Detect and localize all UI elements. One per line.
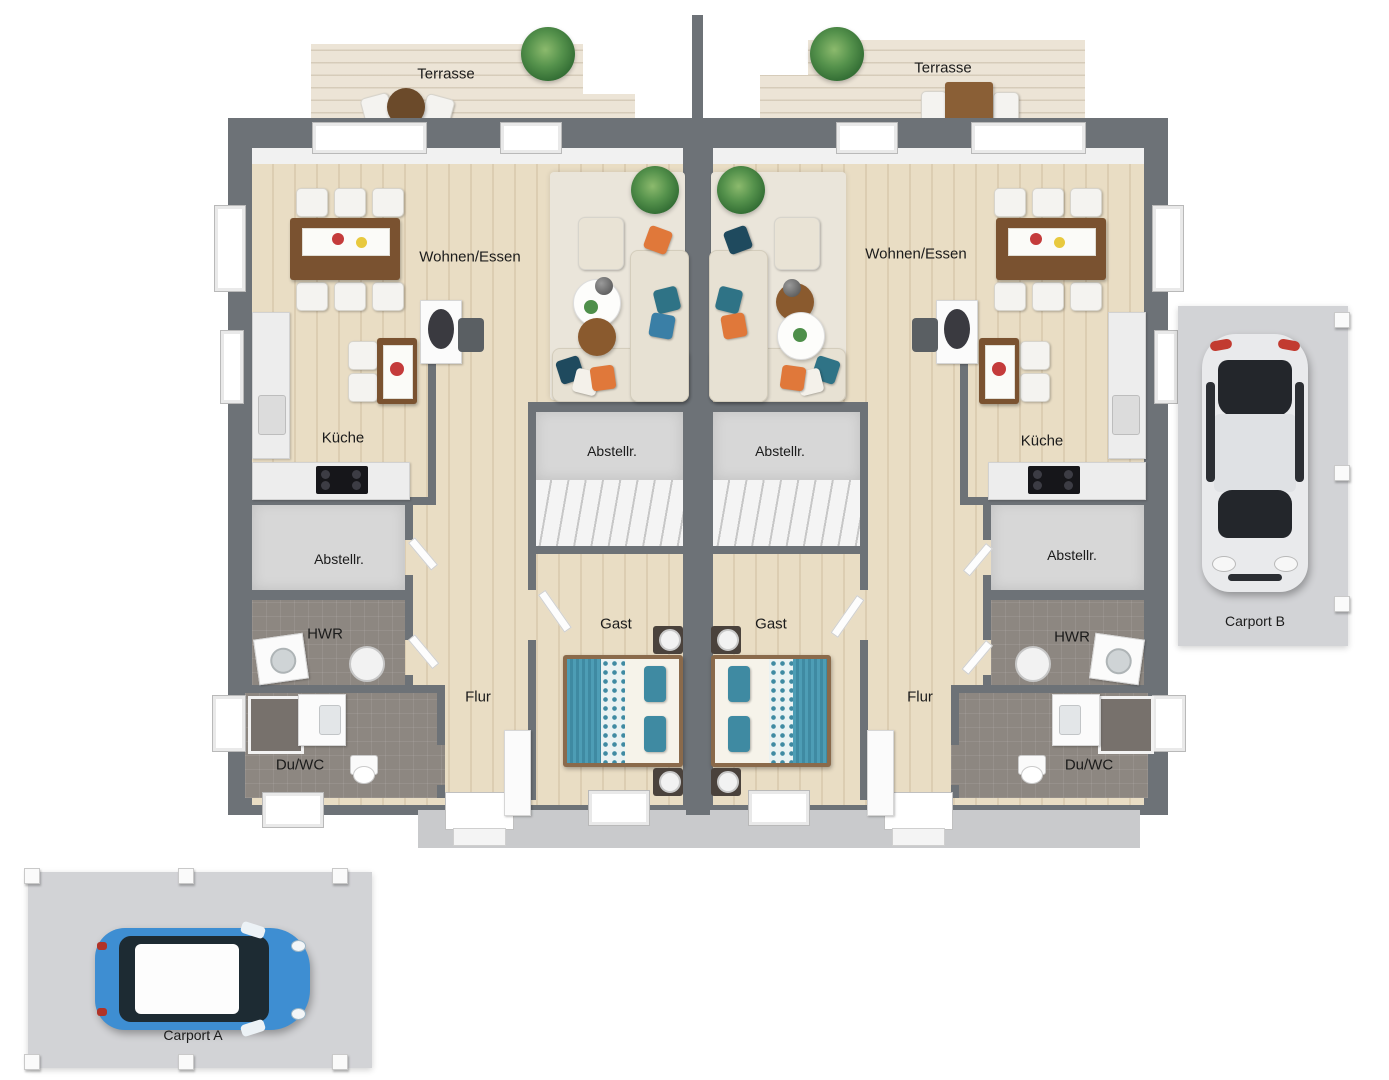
window xyxy=(1152,205,1184,292)
bedside-lamp xyxy=(717,771,739,793)
bed-left-blanket xyxy=(567,659,601,763)
kitchen-chair xyxy=(1020,373,1050,402)
wall xyxy=(405,575,413,640)
bed-left-runner xyxy=(601,659,625,763)
stairs-right xyxy=(713,480,861,546)
wardrobe-right xyxy=(867,730,894,816)
carport-post xyxy=(332,1054,348,1070)
carport-post xyxy=(1334,596,1350,612)
vanity-right xyxy=(1052,694,1100,746)
laundry-basket-right xyxy=(1015,646,1051,682)
label-carport-b: Carport B xyxy=(1225,613,1285,629)
wall xyxy=(528,402,536,590)
window xyxy=(212,695,246,752)
cooktop-right xyxy=(1028,466,1080,494)
wall xyxy=(951,693,959,745)
room-label-bath-right: Du/WC xyxy=(1065,757,1113,774)
terrace-left-plant xyxy=(521,27,575,81)
room-label-hall-right: Flur xyxy=(907,689,933,706)
storage-side-left-floor xyxy=(252,502,405,590)
wardrobe-left xyxy=(504,730,531,816)
label-carport-a: Carport A xyxy=(163,1027,222,1043)
toilet-left-bowl xyxy=(353,766,375,784)
room-label-terrace-right: Terrasse xyxy=(914,60,972,77)
dining-chair xyxy=(334,188,366,217)
tall-unit-left xyxy=(420,300,462,364)
flowers xyxy=(1030,233,1042,245)
room-label-guest-right: Gast xyxy=(755,616,787,633)
window xyxy=(588,790,650,826)
kitchen-chair xyxy=(1020,341,1050,370)
kitchen-table-left xyxy=(377,338,417,404)
storage-side-right-floor xyxy=(991,502,1144,590)
car-white xyxy=(1202,334,1308,592)
side-table-left xyxy=(578,318,616,356)
decor-sphere xyxy=(783,279,801,297)
kitchen-table-right xyxy=(979,338,1019,404)
floor-plan: Terrasse Terrasse Wohnen/Essen Wohnen/Es… xyxy=(0,0,1389,1080)
bedside-lamp xyxy=(717,629,739,651)
kitchen-counter-left xyxy=(252,312,290,459)
dining-chair xyxy=(334,282,366,311)
living-right-plant xyxy=(717,166,765,214)
shower-right xyxy=(1098,696,1154,754)
carport-post xyxy=(24,868,40,884)
washer-right xyxy=(1089,633,1145,686)
table-runner xyxy=(302,228,390,256)
vanity-left xyxy=(298,694,346,746)
bed-right-runner xyxy=(769,659,793,763)
room-label-terrace-left: Terrasse xyxy=(417,66,475,83)
washer-left xyxy=(253,633,309,686)
dining-chair xyxy=(1070,282,1102,311)
party-wall-chimney xyxy=(692,15,703,125)
bed-left-pillow xyxy=(644,666,666,702)
party-wall xyxy=(686,118,710,815)
table-plant xyxy=(584,300,598,314)
armchair-right xyxy=(774,217,820,270)
kitchen-chair xyxy=(348,373,378,402)
room-label-living-right: Wohnen/Essen xyxy=(865,246,966,263)
wall xyxy=(437,785,445,798)
bedside-lamp xyxy=(659,771,681,793)
carport-post xyxy=(1334,312,1350,328)
window xyxy=(748,790,810,826)
wall xyxy=(951,685,1148,693)
wall xyxy=(437,693,445,745)
room-label-utility-right: HWR xyxy=(1054,629,1090,646)
room-label-guest-left: Gast xyxy=(600,616,632,633)
room-label-storage-side-left: Abstellr. xyxy=(314,551,364,567)
wall xyxy=(713,402,861,412)
wall xyxy=(860,402,868,590)
table-runner xyxy=(1008,228,1096,256)
window xyxy=(500,122,562,154)
kitchen-stool-left xyxy=(458,318,484,352)
sink xyxy=(258,395,286,435)
table-plant xyxy=(793,328,807,342)
pillow-orange xyxy=(779,364,806,391)
room-label-storage-side-right: Abstellr. xyxy=(1047,547,1097,563)
wall xyxy=(535,402,683,412)
window xyxy=(262,792,324,828)
living-left-plant xyxy=(631,166,679,214)
carport-post xyxy=(1334,465,1350,481)
decor-sphere xyxy=(595,277,613,295)
wall xyxy=(983,575,991,640)
terrace-door-left xyxy=(312,122,427,154)
bed-left-pillow xyxy=(644,716,666,752)
room-label-hall-left: Flur xyxy=(465,689,491,706)
entrance-step-left xyxy=(453,828,506,846)
wall xyxy=(991,590,1144,600)
toilet-right-bowl xyxy=(1021,766,1043,784)
dining-chair xyxy=(296,188,328,217)
terrace-right-plant xyxy=(810,27,864,81)
dining-chair xyxy=(372,188,404,217)
room-label-living-left: Wohnen/Essen xyxy=(419,249,520,266)
bedside-lamp xyxy=(659,629,681,651)
dining-chair xyxy=(994,188,1026,217)
kitchen-stool-right xyxy=(912,318,938,352)
carport-post xyxy=(24,1054,40,1070)
dining-chair xyxy=(1070,188,1102,217)
entrance-step-right xyxy=(892,828,945,846)
kitchen-chair xyxy=(348,341,378,370)
room-label-kitchen-left: Küche xyxy=(322,430,365,447)
dining-chair xyxy=(994,282,1026,311)
wall xyxy=(405,497,413,540)
room-label-kitchen-right: Küche xyxy=(1021,433,1064,450)
car-blue xyxy=(95,928,310,1030)
bowl xyxy=(1054,237,1065,248)
kitchen-counter-right xyxy=(1108,312,1146,459)
bed-right-blanket xyxy=(793,659,827,763)
carport-post xyxy=(178,1054,194,1070)
wall xyxy=(428,360,436,505)
dining-chair xyxy=(1032,282,1064,311)
room-label-bath-left: Du/WC xyxy=(276,757,324,774)
terrace-door-right xyxy=(971,122,1086,154)
stairs-left xyxy=(535,480,683,546)
laundry-basket-left xyxy=(349,646,385,682)
window xyxy=(220,330,244,404)
pillow-blue xyxy=(648,312,676,340)
carport-post xyxy=(178,868,194,884)
window xyxy=(214,205,246,292)
sink xyxy=(1112,395,1140,435)
window xyxy=(1154,330,1178,404)
tall-unit-right xyxy=(936,300,978,364)
room-label-storage-center-right: Abstellr. xyxy=(755,443,805,459)
cooktop-left xyxy=(316,466,368,494)
wall xyxy=(960,360,968,505)
flowers xyxy=(332,233,344,245)
wall xyxy=(535,546,683,554)
bowl xyxy=(356,237,367,248)
bed-right-pillow xyxy=(728,716,750,752)
wall xyxy=(713,546,861,554)
wall xyxy=(983,497,991,540)
carport-post xyxy=(332,868,348,884)
bed-right-pillow xyxy=(728,666,750,702)
pillow-orange xyxy=(720,312,748,340)
window xyxy=(836,122,898,154)
room-label-storage-center-left: Abstellr. xyxy=(587,443,637,459)
armchair-left xyxy=(578,217,624,270)
wall xyxy=(245,685,445,693)
entrance-door-right xyxy=(884,792,953,830)
shower-left xyxy=(248,696,304,754)
dining-chair xyxy=(296,282,328,311)
pillow-orange xyxy=(589,364,616,391)
dining-chair xyxy=(1032,188,1064,217)
wall xyxy=(252,590,405,600)
window xyxy=(1152,695,1186,752)
dining-chair xyxy=(372,282,404,311)
room-label-utility-left: HWR xyxy=(307,626,343,643)
